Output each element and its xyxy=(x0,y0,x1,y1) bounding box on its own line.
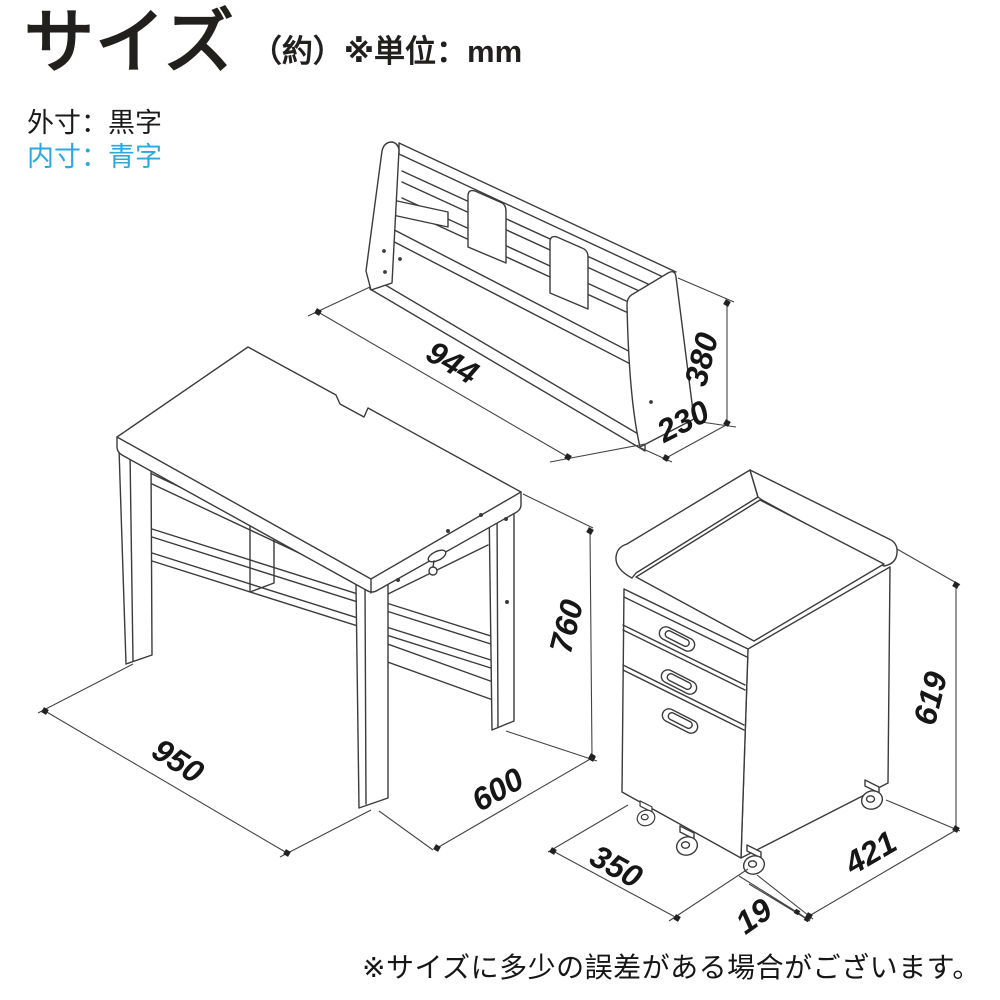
wagon-caster-label: 19 xyxy=(729,891,779,941)
size-tolerance-note: ※サイズに多少の誤差がある場合がございます。 xyxy=(362,946,981,986)
wagon-width-label: 350 xyxy=(584,838,648,895)
desk-front-leg xyxy=(356,571,388,808)
desk-height-label: 760 xyxy=(542,596,590,657)
shelf-divider-left xyxy=(468,191,506,263)
furniture-diagram: 944 380 230 xyxy=(0,0,1000,1000)
desk-height-dim-line xyxy=(590,531,592,757)
shelf-divider-right xyxy=(550,237,588,309)
shelf-height-label: 380 xyxy=(677,329,725,390)
desk-width-label: 950 xyxy=(146,731,211,790)
wagon-height-label: 619 xyxy=(906,668,954,729)
shelf-unit-figure xyxy=(366,142,694,451)
wagon-figure xyxy=(616,470,897,877)
size-diagram-page: サイズ （約）※単位：mm 外寸：黒字 内寸：青字 xyxy=(0,0,1000,1000)
wagon-depth-label: 421 xyxy=(838,824,903,882)
desk-right-leg xyxy=(489,493,514,730)
desk-depth-label: 600 xyxy=(465,760,529,818)
shelf-left-panel xyxy=(366,142,399,290)
shelf-board xyxy=(377,221,644,371)
desk-left-leg xyxy=(119,449,152,664)
shelf-step xyxy=(388,199,448,227)
